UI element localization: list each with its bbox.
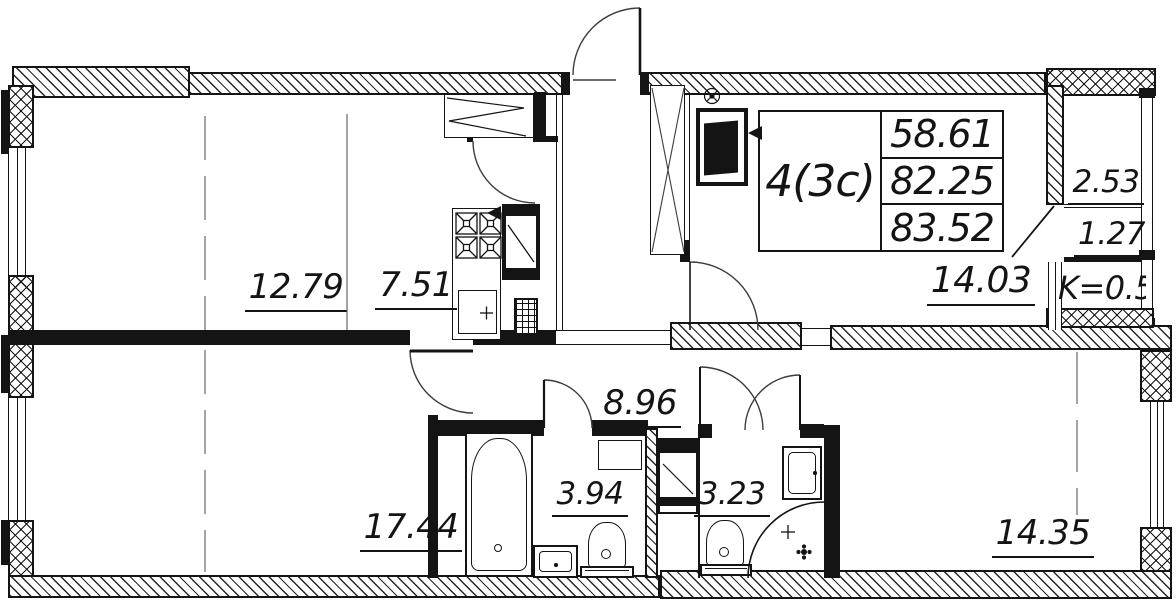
glazing-block-1 xyxy=(1139,88,1155,98)
toilet-323-drain xyxy=(719,547,729,557)
washbasin-394-tap xyxy=(554,563,558,567)
room-label-7-51: 7.51 xyxy=(366,268,466,304)
hall-wardrobe xyxy=(696,108,748,186)
room-label-12-79: 12.79 xyxy=(238,270,354,306)
title-block-living-area: 58.61 xyxy=(882,112,1002,157)
door-bathroom-3-94 xyxy=(544,380,592,428)
wall-bottom-left xyxy=(8,575,660,598)
toilet-394-tank xyxy=(580,566,634,578)
duct-shaft xyxy=(650,85,685,255)
bathtub xyxy=(465,432,533,577)
title-block: 4(3c) 58.61 82.25 83.52 xyxy=(758,110,1004,252)
room-label-14-03: 14.03 xyxy=(922,262,1040,300)
vent-box xyxy=(514,298,538,336)
wall-bath-323-north-a xyxy=(698,424,712,438)
door-bathroom-3-23 xyxy=(700,367,763,430)
corridor-opening xyxy=(802,328,830,346)
window-room-14-35 xyxy=(1150,402,1164,527)
washbasin-323-tap xyxy=(813,471,817,475)
wall-top-right xyxy=(647,72,1046,95)
bathtub-drain xyxy=(494,544,502,552)
wall-right-pier-2 xyxy=(1140,527,1172,572)
balcony-label-coefficient: K=0.5 xyxy=(1058,272,1146,306)
wall-bath-394-west xyxy=(428,415,438,578)
toilet-323-bowl xyxy=(706,520,744,568)
wall-middle-right xyxy=(830,325,1172,350)
entry-jamb-left xyxy=(563,72,570,95)
entry-wardrobe xyxy=(444,94,534,138)
floor-plan: 12.79 7.51 14.03 8.96 17.44 3.94 3.23 14… xyxy=(0,0,1176,600)
title-block-unit-type: 4(3c) xyxy=(760,112,882,250)
title-block-main-area: 82.25 xyxy=(882,157,1002,204)
kitchen-door xyxy=(473,141,535,203)
toilet-394-drain xyxy=(601,549,611,559)
door-room-14-03 xyxy=(690,262,758,330)
room-label-8-96: 8.96 xyxy=(590,386,690,422)
wall-left-cap-3 xyxy=(1,520,8,565)
wall-left-cap-1 xyxy=(1,90,8,154)
balcony-label-1-27: 1.27 xyxy=(1074,218,1144,251)
wall-left-pier-3 xyxy=(8,520,34,578)
balcony-divider-2 xyxy=(1064,257,1141,262)
wall-left-cap-2 xyxy=(1,335,8,393)
entry-jamb-right xyxy=(640,72,647,95)
wall-bath-323-north-b xyxy=(800,424,824,438)
fridge xyxy=(502,204,540,280)
shower-drain-icon xyxy=(796,544,811,559)
window-room-17-44 xyxy=(8,398,26,520)
wall-kitchen-hall xyxy=(556,95,563,330)
room-label-17-44: 17.44 xyxy=(356,510,466,546)
toilet-394-bowl xyxy=(588,522,626,570)
balcony-door-leaf xyxy=(1012,206,1054,257)
entry-wardrobe-side xyxy=(534,92,546,138)
room-label-14-35: 14.35 xyxy=(988,516,1098,552)
wall-balcony-bottom xyxy=(1046,308,1154,328)
entry-door xyxy=(573,8,640,80)
wall-bath-323-east xyxy=(824,425,840,578)
room-label-3-94: 3.94 xyxy=(546,478,634,511)
washbasin-394 xyxy=(533,545,578,578)
water-heater xyxy=(598,440,642,470)
door-room-17-44 xyxy=(410,350,473,413)
wall-middle-left xyxy=(8,330,410,345)
wall-left-pier-1 xyxy=(8,85,34,148)
balcony-label-2-53: 2.53 xyxy=(1068,166,1144,199)
wall-right-pier-1 xyxy=(1140,350,1172,402)
hall-opening-threshold xyxy=(556,330,673,345)
wall-balcony-partition xyxy=(1046,85,1064,205)
room-label-3-23: 3.23 xyxy=(688,478,776,511)
wall-top-left-pier xyxy=(12,66,190,98)
window-room-12-79 xyxy=(8,148,26,275)
toilet-323-tank xyxy=(700,564,752,576)
wall-middle-hatched xyxy=(670,322,802,350)
wall-top-left xyxy=(188,72,563,95)
title-block-total-area: 83.52 xyxy=(882,203,1002,250)
door-room-14-35 xyxy=(745,375,800,430)
